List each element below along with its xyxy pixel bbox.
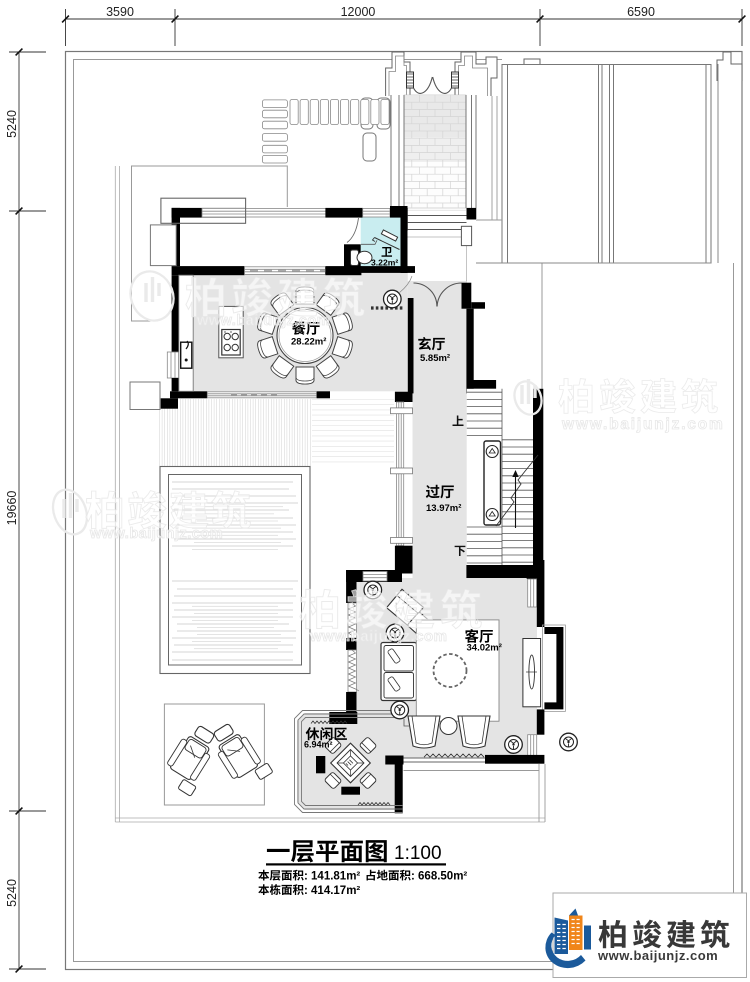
svg-text:12000: 12000 <box>341 5 376 19</box>
svg-text:34.02m²: 34.02m² <box>467 643 502 654</box>
svg-text:13.97m²: 13.97m² <box>426 503 461 514</box>
svg-text:: 668.50m²: : 668.50m² <box>411 871 467 883</box>
svg-text:6590: 6590 <box>627 5 655 19</box>
svg-text:: 141.81m²: : 141.81m² <box>304 871 360 883</box>
svg-text:6.94m²: 6.94m² <box>304 740 333 750</box>
svg-text:www.baijunjz.com: www.baijunjz.com <box>561 416 725 433</box>
svg-text:1:100: 1:100 <box>394 843 442 864</box>
svg-text:www.baijunjz.com: www.baijunjz.com <box>196 313 330 329</box>
svg-text:: 414.17m²: : 414.17m² <box>304 885 360 897</box>
svg-text:3.22m²: 3.22m² <box>371 258 398 268</box>
svg-text:19660: 19660 <box>5 491 19 526</box>
svg-text:5240: 5240 <box>5 110 19 138</box>
svg-text:28.22m²: 28.22m² <box>291 337 326 348</box>
svg-text:3590: 3590 <box>106 5 134 19</box>
svg-text:www.baijunjz.com: www.baijunjz.com <box>309 628 447 645</box>
svg-text:www.baijunjz.com: www.baijunjz.com <box>89 526 223 542</box>
svg-text:5240: 5240 <box>5 879 19 907</box>
svg-text:5.85m²: 5.85m² <box>420 353 450 364</box>
svg-text:www.baijunjz.com: www.baijunjz.com <box>597 948 718 963</box>
